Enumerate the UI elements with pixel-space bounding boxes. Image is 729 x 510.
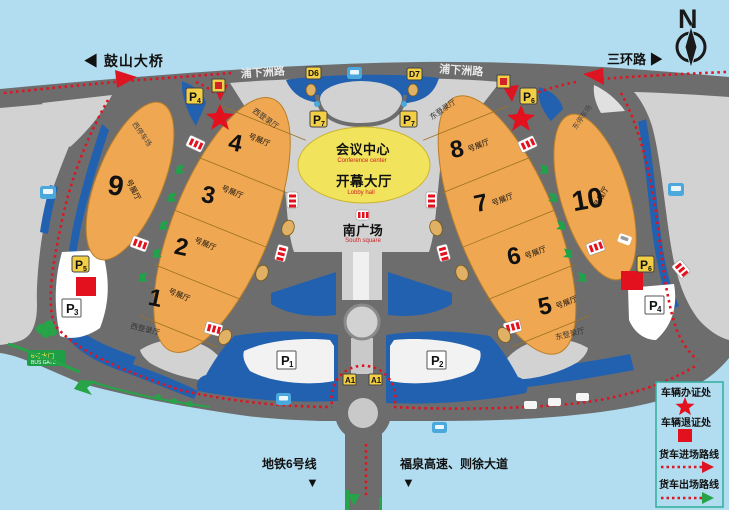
svg-text:Conference center: Conference center [337, 158, 386, 164]
svg-text:4: 4 [657, 305, 662, 314]
svg-text:5: 5 [83, 266, 87, 273]
svg-text:7: 7 [411, 121, 415, 128]
svg-text:N: N [678, 4, 698, 34]
svg-text:South square: South square [345, 238, 381, 244]
svg-text:P: P [313, 113, 321, 127]
svg-text:货车出场路线: 货车出场路线 [659, 478, 719, 491]
svg-text:D6: D6 [308, 68, 319, 78]
svg-text:2: 2 [439, 360, 444, 369]
svg-text:P: P [189, 90, 197, 104]
svg-text:P: P [403, 113, 411, 127]
svg-text:地铁6号线: 地铁6号线 [262, 456, 317, 471]
svg-text:6: 6 [531, 98, 535, 105]
svg-text:◀ 鼓山大桥: ◀ 鼓山大桥 [84, 53, 164, 69]
svg-text:三环路 ▶: 三环路 ▶ [607, 52, 663, 67]
svg-text:Lobby hall: Lobby hall [347, 190, 374, 196]
svg-text:▼: ▼ [402, 475, 415, 490]
svg-text:P: P [640, 258, 648, 272]
svg-text:福泉高速、则徐大道: 福泉高速、则徐大道 [399, 456, 508, 471]
svg-text:4: 4 [197, 98, 201, 105]
svg-text:▼: ▼ [306, 475, 319, 490]
svg-text:车辆退证处: 车辆退证处 [661, 416, 712, 429]
svg-text:P: P [75, 258, 83, 272]
svg-text:1: 1 [289, 360, 294, 369]
svg-text:A1: A1 [371, 376, 382, 385]
svg-text:车辆办证处: 车辆办证处 [661, 386, 712, 399]
svg-text:货车进场路线: 货车进场路线 [659, 448, 719, 461]
svg-text:P: P [523, 90, 531, 104]
svg-text:A1: A1 [345, 376, 356, 385]
svg-text:南广场: 南广场 [343, 223, 384, 238]
svg-text:6: 6 [648, 266, 652, 273]
svg-text:D7: D7 [409, 69, 420, 79]
svg-text:3: 3 [74, 308, 79, 317]
svg-text:开幕大厅: 开幕大厅 [336, 173, 392, 189]
svg-text:会议中心: 会议中心 [336, 142, 390, 157]
svg-text:7: 7 [321, 121, 325, 128]
